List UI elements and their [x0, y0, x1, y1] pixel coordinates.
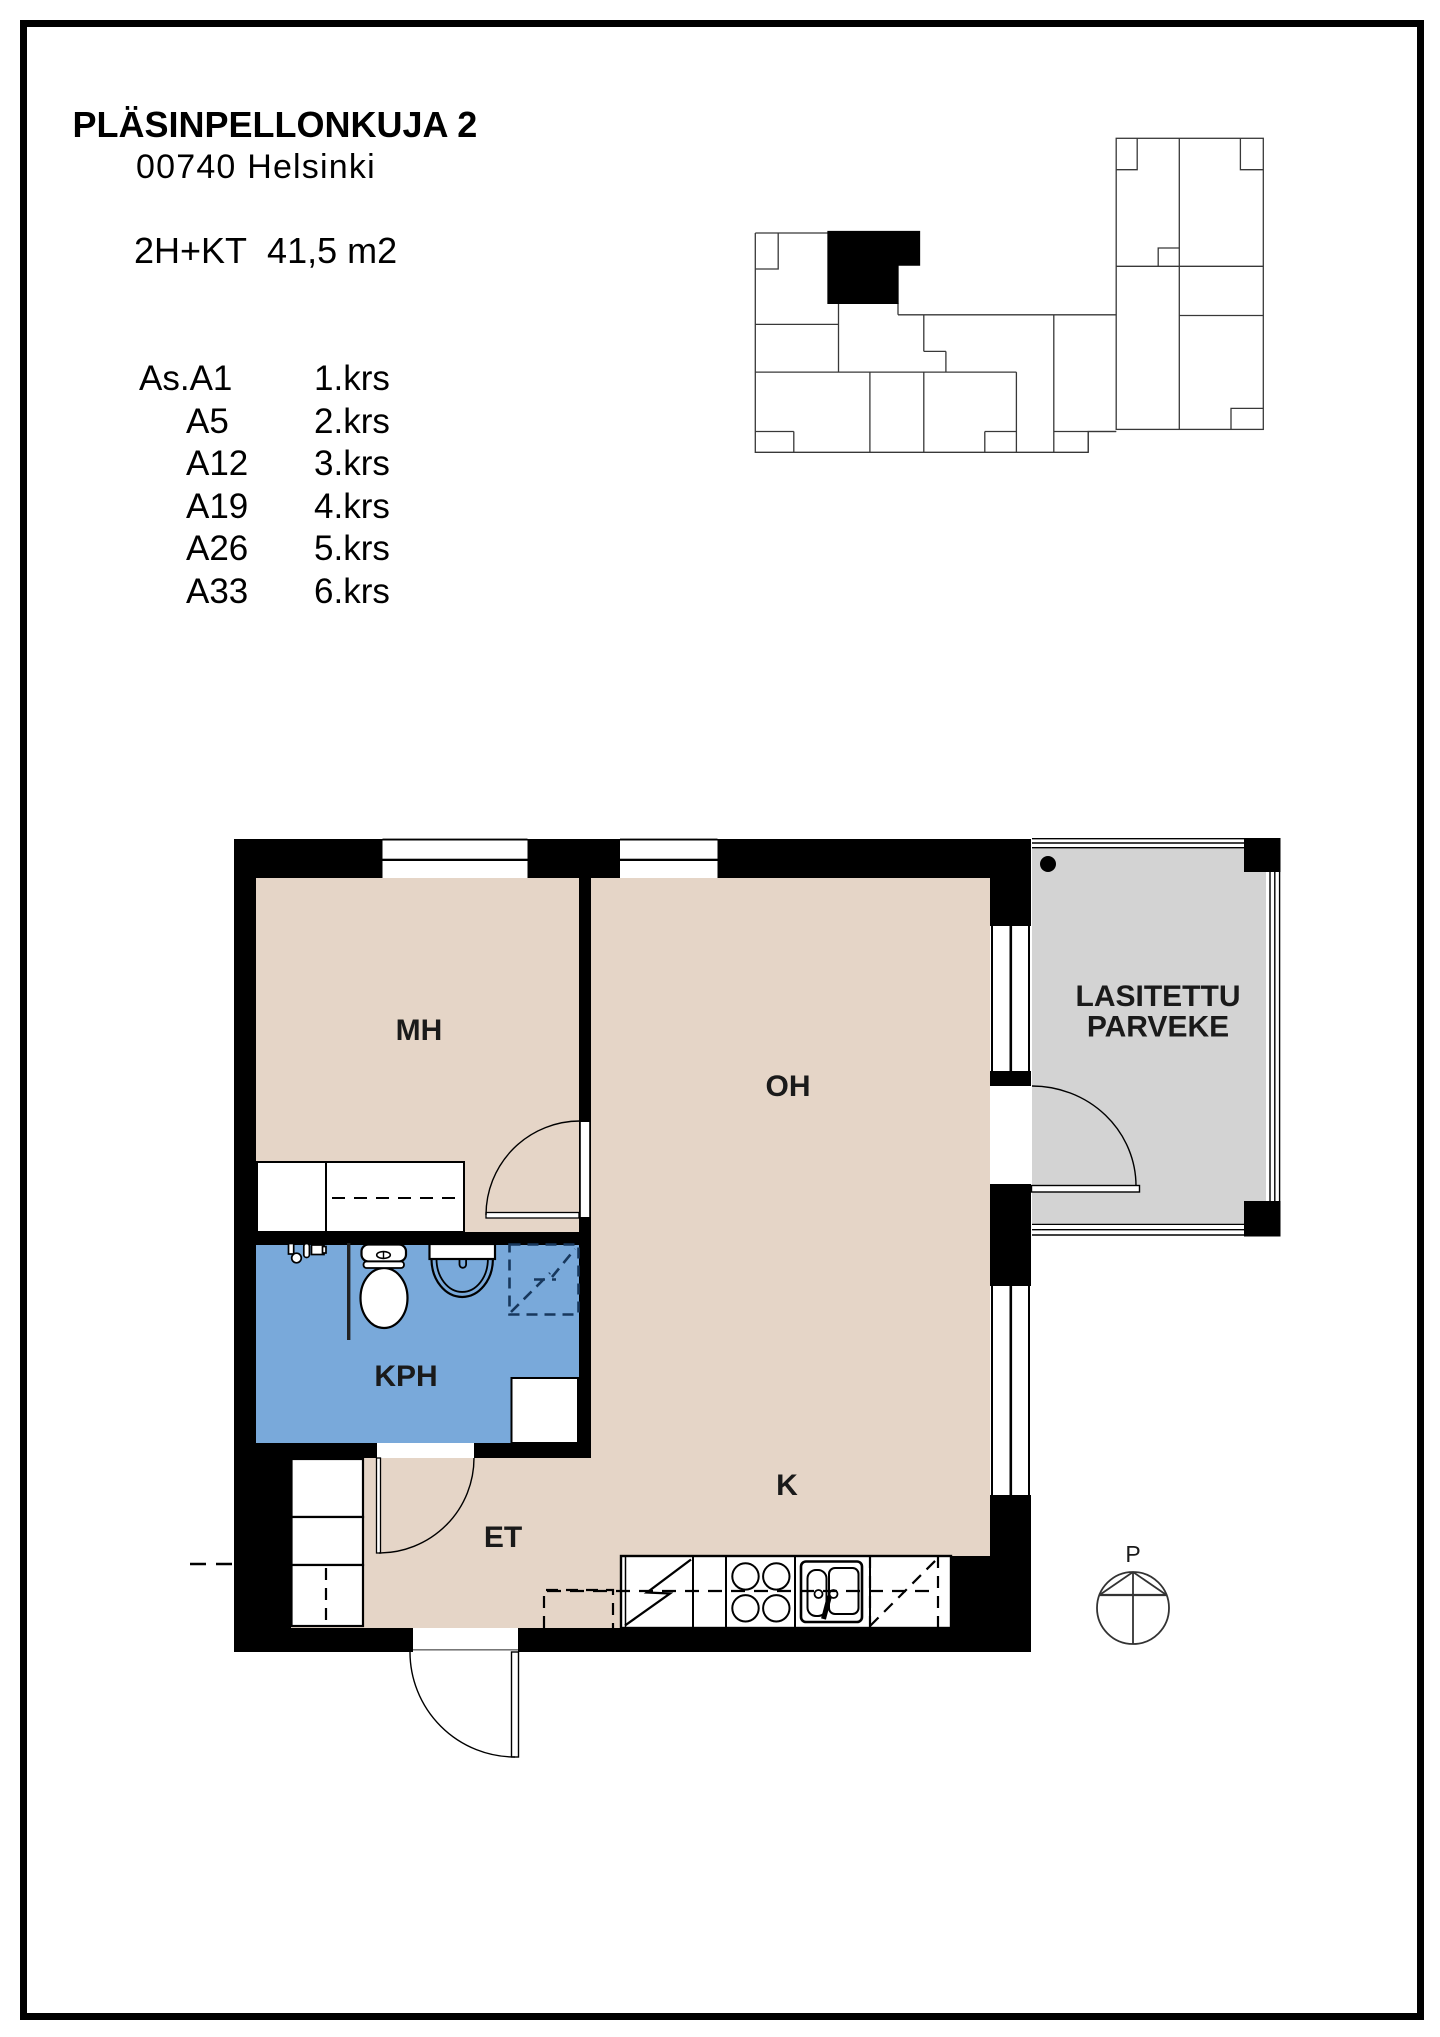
- svg-text:LASITETTU: LASITETTU: [1076, 980, 1241, 1013]
- svg-text:MH: MH: [396, 1014, 443, 1047]
- svg-text:K: K: [776, 1469, 798, 1502]
- svg-text:KPH: KPH: [374, 1360, 437, 1393]
- svg-text:P: P: [1125, 1541, 1140, 1567]
- svg-text:OH: OH: [766, 1070, 811, 1103]
- svg-text:PARVEKE: PARVEKE: [1087, 1011, 1229, 1044]
- svg-text:ET: ET: [484, 1521, 522, 1554]
